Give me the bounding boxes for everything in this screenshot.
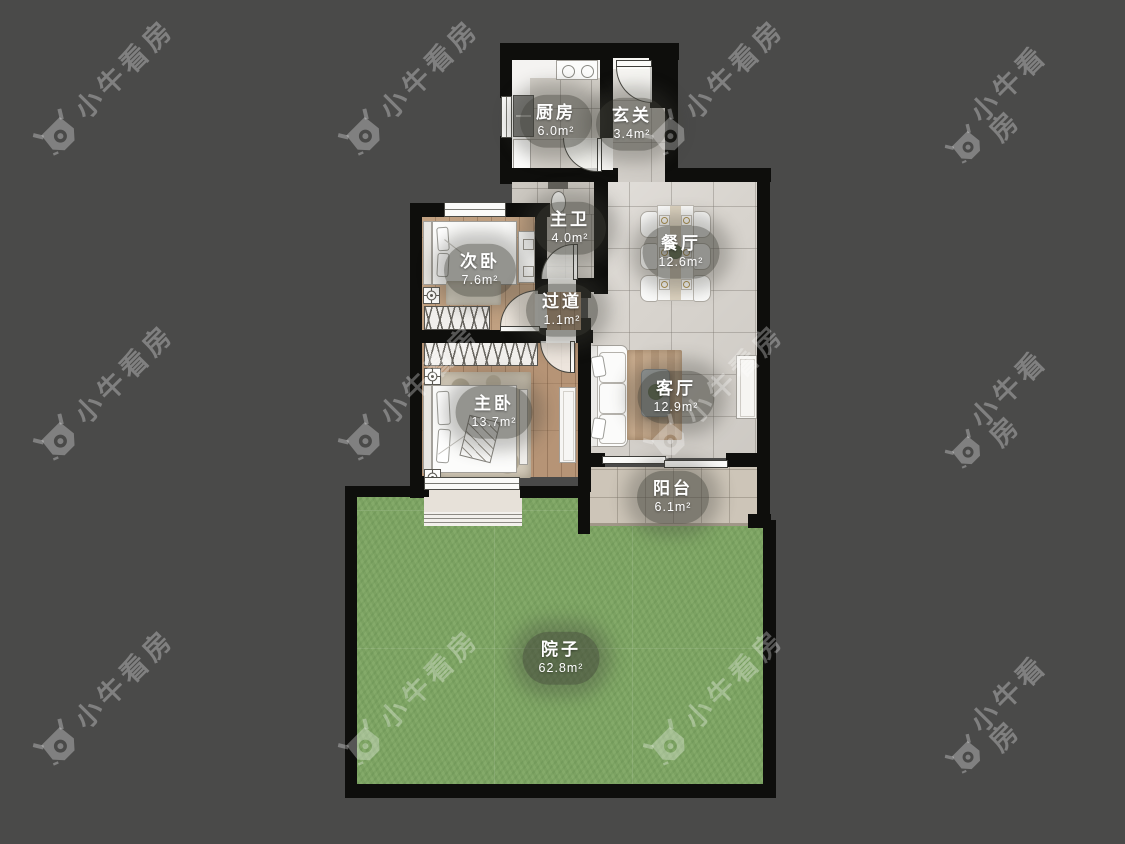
room-label-master-bedroom: 主卧 13.7m² xyxy=(456,386,533,439)
place-setting xyxy=(681,279,692,290)
entry-door-leaf xyxy=(616,60,652,67)
balcony-edge-line xyxy=(588,523,754,526)
wall xyxy=(520,486,580,498)
place-setting xyxy=(659,215,670,226)
kitchen-cabinet xyxy=(513,139,531,169)
room-area: 62.8m² xyxy=(539,660,584,676)
watermark-text: 小牛看房 xyxy=(966,642,1081,757)
room-name: 玄关 xyxy=(612,105,652,126)
watermark-text: 小牛看房 xyxy=(966,32,1081,147)
kitchen-door-leaf xyxy=(597,138,602,172)
master-door-leaf xyxy=(570,341,575,373)
hvac-symbol-icon xyxy=(423,287,440,304)
nightstand-lamp xyxy=(523,239,534,250)
watermark: 小牛看房 xyxy=(936,337,1081,482)
wall xyxy=(757,458,770,520)
room-name: 主卫 xyxy=(550,209,590,230)
room-name: 院子 xyxy=(541,639,581,660)
watermark-text: 小牛看房 xyxy=(680,14,790,124)
dining-chair xyxy=(640,275,658,302)
brand-bull-camera-logo-icon xyxy=(336,411,393,468)
watermark-text: 小牛看房 xyxy=(70,14,180,124)
watermark: 小牛看房 xyxy=(936,32,1081,177)
brand-bull-camera-logo-icon xyxy=(31,411,88,468)
room-name: 厨房 xyxy=(536,102,576,123)
wall xyxy=(500,43,512,98)
room-name: 餐厅 xyxy=(661,233,701,254)
master-bed-headboard xyxy=(423,385,432,473)
brand-bull-camera-logo-icon xyxy=(941,730,993,782)
master-bedroom-window xyxy=(424,477,520,490)
wall xyxy=(665,168,771,182)
room-name: 次卧 xyxy=(460,251,500,272)
room-name: 过道 xyxy=(542,291,582,312)
nightstand-lamp xyxy=(523,266,534,277)
room-label-master-bath: 主卫 4.0m² xyxy=(534,202,606,255)
dining-chair xyxy=(693,275,711,302)
brand-bull-camera-logo-icon xyxy=(941,120,993,172)
room-area: 7.6m² xyxy=(462,272,499,288)
master-wardrobe xyxy=(424,342,538,366)
watermark: 小牛看房 xyxy=(936,642,1081,787)
room-label-dining: 餐厅 12.6m² xyxy=(643,226,720,279)
floorplan-canvas: 厨房 6.0m² 玄关 3.4m² 主卫 4.0m² 次卧 7.6m² 过道 1… xyxy=(0,0,1125,844)
wall xyxy=(345,784,776,798)
sofa-cushion xyxy=(599,383,626,414)
room-label-kitchen: 厨房 6.0m² xyxy=(520,95,592,148)
wall xyxy=(410,476,424,498)
burner-icon xyxy=(562,65,575,78)
bedroom2-window xyxy=(444,202,506,217)
wall xyxy=(410,203,446,217)
patio-step-landing xyxy=(424,490,522,512)
patio-steps xyxy=(424,512,522,526)
room-label-yard: 院子 62.8m² xyxy=(523,632,600,685)
hvac-symbol-icon xyxy=(424,368,441,385)
wall xyxy=(763,520,776,788)
room-label-balcony: 阳台 6.1m² xyxy=(637,471,709,524)
tv-stand xyxy=(736,355,757,419)
room-name: 阳台 xyxy=(653,478,693,499)
wall xyxy=(578,332,591,492)
burner-icon xyxy=(581,65,594,78)
wall xyxy=(410,203,422,498)
wall xyxy=(500,43,679,60)
watermark: 小牛看房 xyxy=(31,10,184,163)
room-area: 6.0m² xyxy=(538,123,575,139)
bed2-wardrobe xyxy=(424,306,490,330)
watermark: 小牛看房 xyxy=(336,10,489,163)
bed2-headboard xyxy=(423,221,432,285)
master-bed-pillow xyxy=(436,391,451,426)
tv-stand-inner-line xyxy=(740,359,755,417)
room-area: 6.1m² xyxy=(655,499,692,515)
brand-bull-camera-logo-icon xyxy=(31,106,88,163)
cabinet-inner-line xyxy=(563,391,574,461)
room-area: 4.0m² xyxy=(552,230,589,246)
bed2-nightstand xyxy=(518,231,535,283)
wall xyxy=(345,486,357,798)
brand-bull-camera-logo-icon xyxy=(31,716,88,773)
room-label-entry: 玄关 3.4m² xyxy=(596,98,668,151)
watermark: 小牛看房 xyxy=(31,315,184,468)
room-area: 12.6m² xyxy=(659,254,704,270)
room-area: 1.1m² xyxy=(544,312,581,328)
wall xyxy=(726,453,757,467)
stove-cooktop xyxy=(556,60,598,80)
room-label-hallway: 过道 1.1m² xyxy=(526,284,598,337)
room-name: 客厅 xyxy=(656,378,696,399)
master-tv-cabinet xyxy=(559,387,576,463)
room-area: 13.7m² xyxy=(472,414,517,430)
watermark-text: 小牛看房 xyxy=(70,319,180,429)
place-setting xyxy=(659,279,670,290)
room-label-living: 客厅 12.9m² xyxy=(638,371,715,424)
watermark-text: 小牛看房 xyxy=(375,14,485,124)
room-label-second-bedroom: 次卧 7.6m² xyxy=(444,244,516,297)
balcony-slider-pane xyxy=(602,456,666,464)
watermark-text: 小牛看房 xyxy=(70,624,180,734)
sink-faucet xyxy=(548,182,568,189)
room-area: 3.4m² xyxy=(614,126,651,142)
balcony-slider-pane xyxy=(664,460,728,468)
room-name: 主卧 xyxy=(474,393,514,414)
brand-bull-camera-logo-icon xyxy=(941,425,993,477)
watermark: 小牛看房 xyxy=(31,620,184,773)
room-area: 12.9m² xyxy=(654,399,699,415)
wall xyxy=(757,168,770,462)
watermark-text: 小牛看房 xyxy=(966,337,1081,452)
brand-bull-camera-logo-icon xyxy=(336,106,393,163)
kitchen-window xyxy=(501,96,512,138)
place-setting xyxy=(681,215,692,226)
bed2-pillow xyxy=(436,227,450,252)
